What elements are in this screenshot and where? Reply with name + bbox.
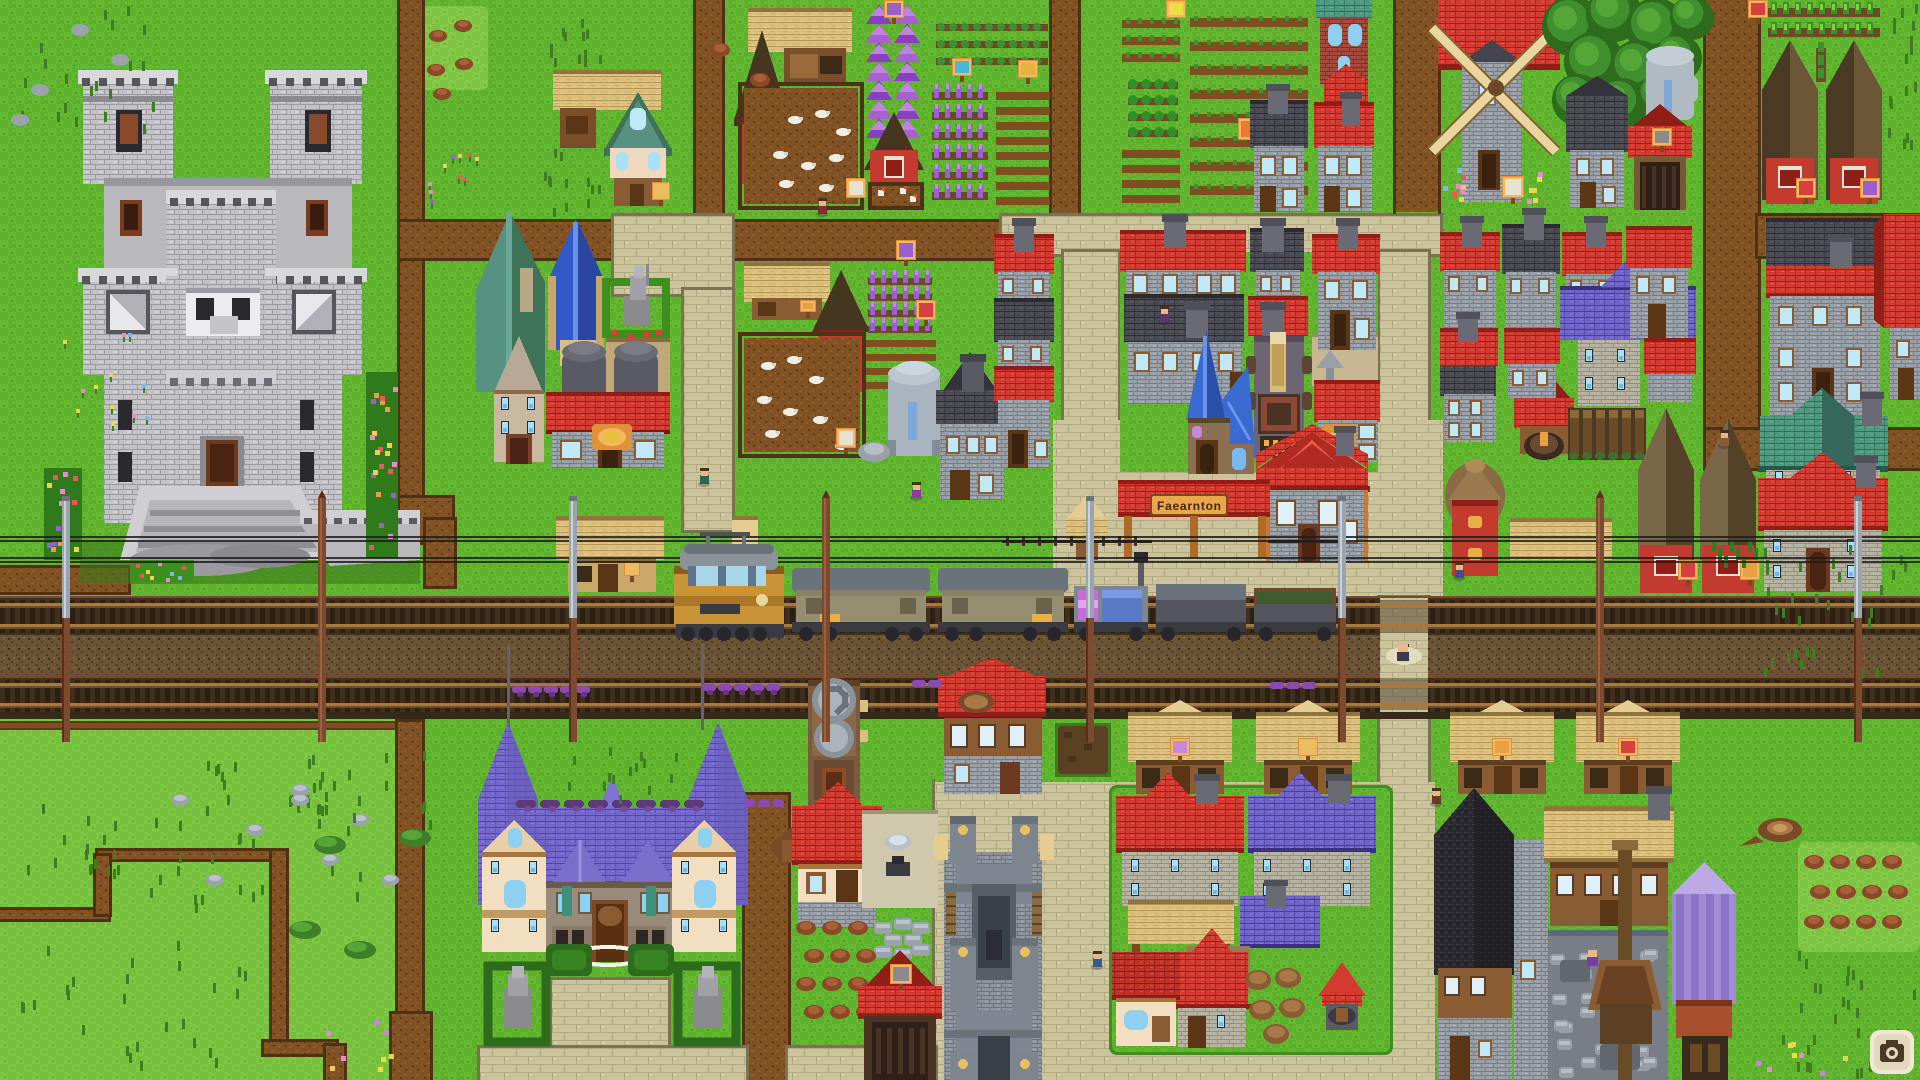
svg-text:Faearnton: Faearnton [1157,499,1221,513]
